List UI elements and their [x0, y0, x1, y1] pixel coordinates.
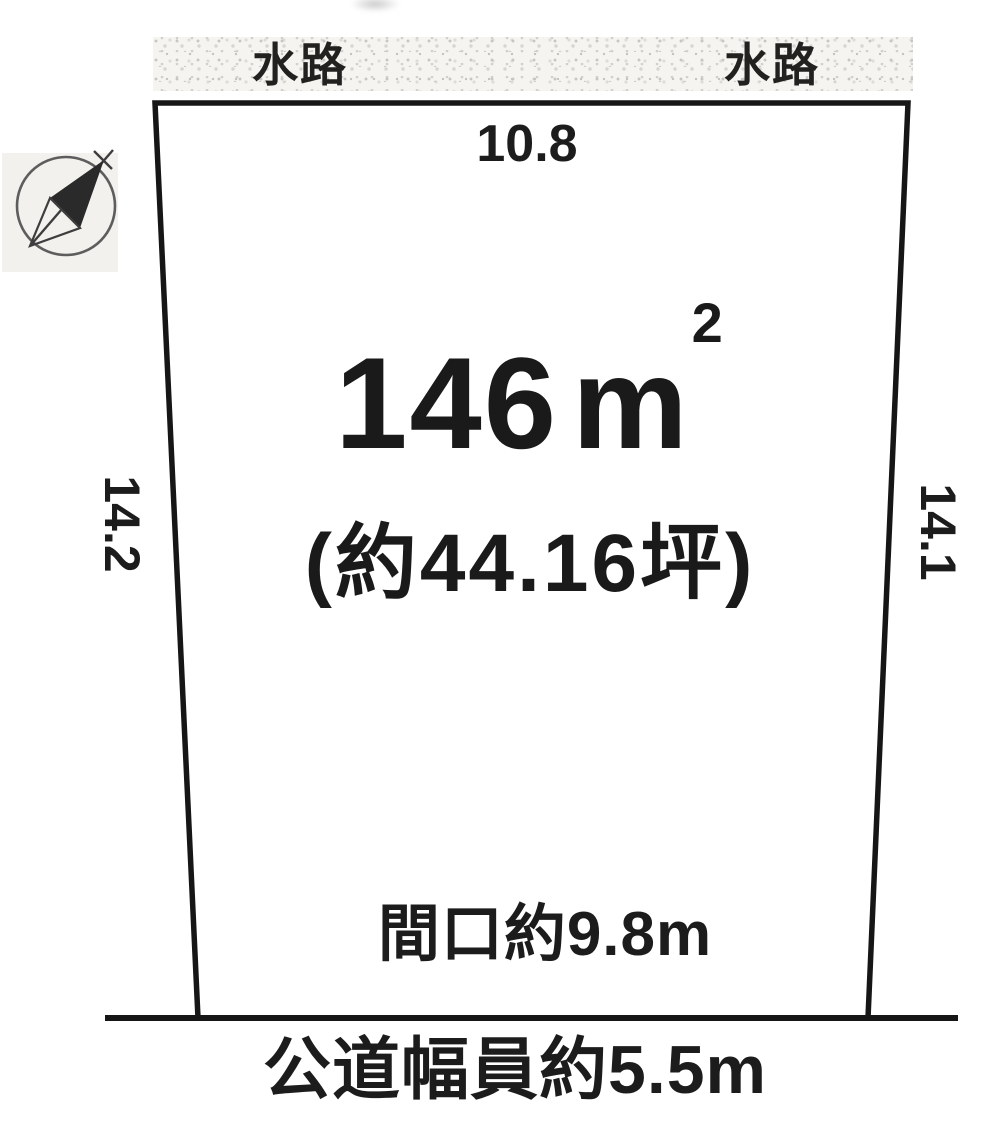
area-exponent: 2 — [692, 291, 725, 354]
area-unit: m — [572, 330, 690, 476]
road-width-label: 公道幅員約5.5m — [215, 1032, 815, 1108]
frontage-label: 間口約9.8m — [295, 900, 795, 970]
right-dimension-label: 14.1 — [912, 457, 964, 607]
area-value: 146 — [335, 330, 558, 476]
left-dimension-label: 14.2 — [96, 449, 148, 599]
area-tsubo-label: (約44.16坪) — [250, 518, 810, 610]
area-label: 146m2 — [270, 338, 790, 468]
top-dimension-label: 10.8 — [462, 118, 592, 170]
